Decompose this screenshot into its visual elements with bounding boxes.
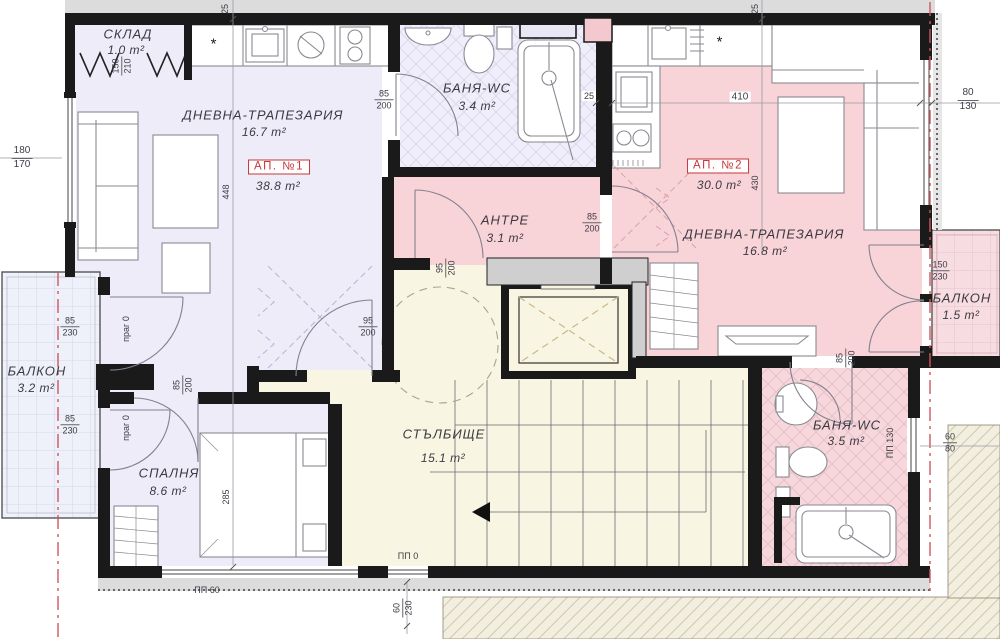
room-label-antre: АНТРЕ <box>481 213 529 228</box>
room-label-living2: ДНЕВНА-ТРАПЕЗАРИЯ <box>684 227 845 242</box>
toilet2-icon <box>776 447 789 477</box>
sill-label-pp0: ПП 0 <box>398 551 418 561</box>
room-area-balcony-left: 3.2 m² <box>17 381 54 395</box>
room-area-antre: 3.1 m² <box>486 231 523 245</box>
floor-plan: СКЛАД 1.0 m² 150210 ДНЕВНА-ТРАПЕЗАРИЯ 16… <box>0 0 1000 639</box>
floor-plan-drawing <box>0 0 1000 639</box>
room-area-bath2: 3.5 m² <box>827 434 864 448</box>
wardrobe-bedroom <box>114 506 158 570</box>
coffee-table <box>778 97 844 193</box>
bed <box>200 433 330 557</box>
dim-285: 285 <box>221 489 231 504</box>
room-label-bath1: БАНЯ-WC <box>443 81 511 96</box>
dim-sklad: 150210 <box>110 56 134 75</box>
room-area-stair: 15.1 m² <box>421 451 465 465</box>
room-label-bedroom: СПАЛНЯ <box>139 466 200 481</box>
dim-25-left: 25 <box>220 4 230 14</box>
dim-wall-25: 25 <box>582 91 596 101</box>
dim-lbalcony-door-up: 85230 <box>60 315 79 339</box>
room-area-living2: 16.8 m² <box>743 244 787 258</box>
tv-cabinet <box>718 326 816 356</box>
room-area-sklad: 1.0 m² <box>107 43 144 57</box>
apartment1-badge: АП. №1 <box>248 160 310 175</box>
dim-bath2-door: 85200 <box>834 348 858 367</box>
elevator <box>505 281 632 375</box>
balcony-left <box>2 272 100 518</box>
room-area-bedroom: 8.6 m² <box>149 484 186 498</box>
room-label-sklad: СКЛАД <box>104 27 153 42</box>
dining-table <box>153 135 218 228</box>
dim-25-right: 25 <box>750 4 760 14</box>
dim-bath1-door: 85200 <box>374 88 393 112</box>
dim-lbalcony-door-dn: 85230 <box>60 413 79 437</box>
kitchen-sink2-icon <box>652 28 686 59</box>
dim-rbalcony-door: 150230 <box>930 259 949 283</box>
sofa-ap1 <box>78 112 138 260</box>
dim-410: 410 <box>730 92 751 103</box>
dim-bedroom-door: 85200 <box>171 375 195 394</box>
room-label-balcony-right: БАЛКОН <box>933 291 992 306</box>
window-left <box>64 92 76 228</box>
room-label-living1: ДНЕВНА-ТРАПЕЗАРИЯ <box>183 108 344 123</box>
window-stair <box>388 566 428 578</box>
apartment2-total-area: 30.0 m² <box>697 178 741 192</box>
sill-label-pp60: ПП 60 <box>194 585 219 595</box>
wardrobe-ap2 <box>650 263 698 349</box>
window-right-ap2 <box>919 60 933 205</box>
kitchen-counter-ap1 <box>190 25 390 66</box>
dim-right-window: 80130 <box>958 87 979 113</box>
dim-left-window: 180170 <box>12 145 33 171</box>
dim-antre-opening: 95200 <box>434 258 458 277</box>
dim-448: 448 <box>221 184 231 199</box>
dim-430: 430 <box>750 175 760 190</box>
dim-bath2-window: 6080 <box>943 431 957 455</box>
threshold-label-up: праг 0 <box>121 316 131 342</box>
room-label-stair: СТЪЛБИЩЕ <box>403 427 486 442</box>
dim-entrance-ap2: 85200 <box>582 211 601 235</box>
window-bedroom <box>162 566 358 578</box>
room-label-bath2: БАНЯ-WC <box>813 418 881 433</box>
apartment1-total-area: 38.8 m² <box>256 179 300 193</box>
toilet-icon <box>464 24 494 36</box>
dim-entrance-ap1: 95200 <box>358 315 377 339</box>
dim-stair-window: 60230 <box>391 598 415 617</box>
sill-label-pp130: ПП 130 <box>885 428 895 458</box>
threshold-label-dn: праг 0 <box>121 415 131 441</box>
star-symbol-2: * <box>717 34 724 51</box>
window-bath2 <box>907 418 921 472</box>
room-area-living1: 16.7 m² <box>242 125 286 139</box>
apartment2-badge: АП. №2 <box>687 159 749 174</box>
star-symbol-1: * <box>211 36 218 53</box>
room-area-balcony-right: 1.5 m² <box>942 308 979 322</box>
side-table <box>162 243 210 293</box>
room-area-bath1: 3.4 m² <box>458 99 495 113</box>
room-label-balcony-left: БАЛКОН <box>8 364 67 379</box>
